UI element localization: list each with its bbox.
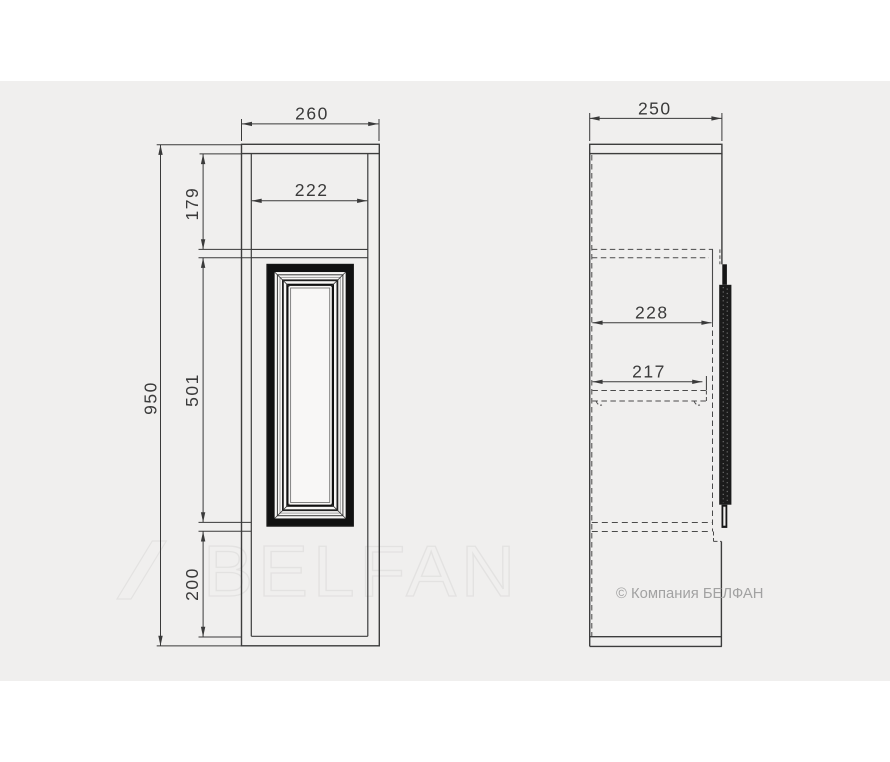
svg-text:© Компания БЕЛФАН: © Компания БЕЛФАН bbox=[616, 586, 763, 602]
svg-text:250: 250 bbox=[638, 99, 672, 119]
svg-text:179: 179 bbox=[182, 187, 202, 221]
svg-text:BELFAN: BELFAN bbox=[203, 532, 520, 612]
svg-text:200: 200 bbox=[182, 567, 202, 601]
svg-text:222: 222 bbox=[295, 180, 329, 200]
svg-text:260: 260 bbox=[295, 104, 329, 124]
svg-text:217: 217 bbox=[632, 362, 666, 382]
svg-text:501: 501 bbox=[182, 373, 202, 407]
svg-text:950: 950 bbox=[141, 381, 161, 415]
svg-text:228: 228 bbox=[635, 303, 669, 323]
